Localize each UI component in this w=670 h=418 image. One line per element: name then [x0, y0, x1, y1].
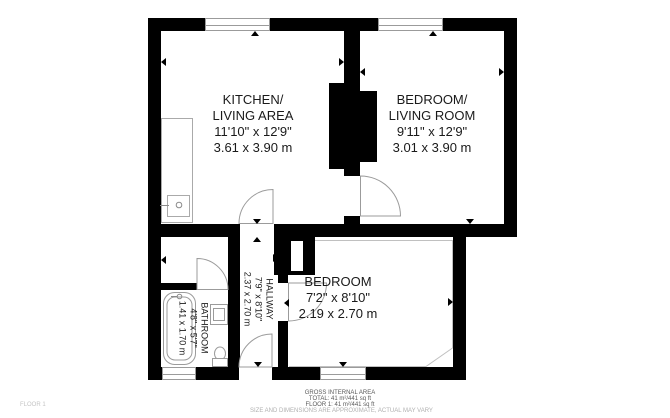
- dimension-marker: [448, 298, 453, 306]
- dimension-marker: [429, 31, 437, 36]
- dimension-marker: [254, 362, 262, 367]
- dimension-marker: [253, 219, 261, 224]
- room-size-metric: 1.41 x 1.70 m: [177, 273, 188, 383]
- room-size-imperial: 4'8" x 5'7": [188, 273, 199, 383]
- floorplan: KITCHEN/ LIVING AREA 11'10" x 12'9" 3.61…: [0, 0, 670, 418]
- dimension-marker: [466, 219, 474, 224]
- hallway-label: HALLWAY 7'9" x 8'10" 2.37 x 2.70 m: [242, 244, 275, 354]
- dimension-marker: [161, 256, 166, 264]
- door-bedroom-living: [361, 176, 401, 216]
- room-size-metric: 3.61 x 3.90 m: [163, 140, 343, 156]
- floor-tag: FLOOR 1: [20, 402, 46, 408]
- room-size-metric: 3.01 x 3.90 m: [342, 140, 522, 156]
- dimension-marker: [161, 58, 166, 66]
- gia-disclaimer: SIZE AND DIMENSIONS ARE APPROXIMATE, ACT…: [250, 408, 430, 414]
- kitchen-appliance: [168, 196, 190, 217]
- room-size-metric: 2.37 x 2.70 m: [242, 244, 253, 354]
- room-name: HALLWAY: [264, 244, 275, 354]
- toilet-cistern: [213, 359, 228, 367]
- dimension-marker: [339, 362, 347, 367]
- room-name: KITCHEN/: [163, 92, 343, 108]
- room-name: BEDROOM/: [342, 92, 522, 108]
- room-size-imperial: 9'11" x 12'9": [342, 124, 522, 140]
- room-size-metric: 2.19 x 2.70 m: [248, 306, 428, 322]
- room-name: LIVING ROOM: [342, 108, 522, 124]
- dimension-marker: [253, 237, 261, 242]
- dimension-marker: [251, 31, 259, 36]
- room-name: LIVING AREA: [163, 108, 343, 124]
- bathroom-label: BATHROOM 4'8" x 5'7" 1.41 x 1.70 m: [177, 273, 210, 383]
- bedroom-living-label: BEDROOM/ LIVING ROOM 9'11" x 12'9" 3.01 …: [342, 92, 522, 156]
- room-name: BEDROOM: [248, 274, 428, 290]
- room-name: BATHROOM: [199, 273, 210, 383]
- dimension-marker: [360, 68, 365, 76]
- dimension-marker: [339, 58, 344, 66]
- symbol-layer: [0, 0, 670, 418]
- room-size-imperial: 7'9" x 8'10": [253, 244, 264, 354]
- kitchen-living-label: KITCHEN/ LIVING AREA 11'10" x 12'9" 3.61…: [163, 92, 343, 156]
- bedroom-label: BEDROOM 7'2" x 8'10" 2.19 x 2.70 m: [248, 274, 428, 322]
- room-size-imperial: 11'10" x 12'9": [163, 124, 343, 140]
- gross-internal-area-note: GROSS INTERNAL AREA TOTAL: 41 m²/441 sq …: [250, 390, 430, 414]
- dimension-marker: [499, 68, 504, 76]
- room-size-imperial: 7'2" x 8'10": [248, 290, 428, 306]
